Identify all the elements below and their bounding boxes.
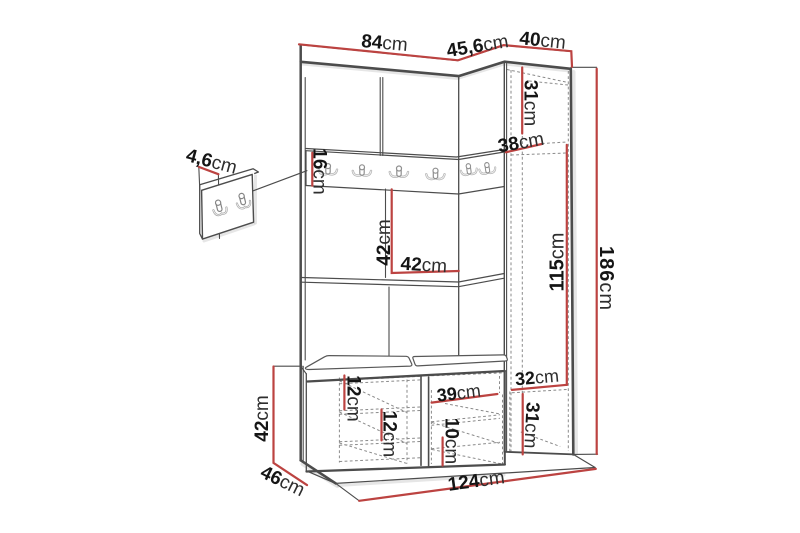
svg-text:16cm: 16cm: [309, 148, 330, 194]
svg-text:186cm: 186cm: [595, 246, 617, 311]
svg-text:31cm: 31cm: [520, 80, 541, 126]
svg-text:84cm: 84cm: [360, 31, 408, 56]
svg-text:32cm: 32cm: [514, 366, 560, 390]
svg-text:115cm: 115cm: [547, 233, 569, 292]
svg-text:42cm: 42cm: [374, 219, 395, 265]
svg-text:31cm: 31cm: [519, 402, 542, 450]
svg-text:10cm: 10cm: [441, 418, 462, 464]
svg-text:42cm: 42cm: [252, 395, 273, 441]
svg-text:42cm: 42cm: [400, 254, 448, 278]
svg-text:12cm: 12cm: [343, 375, 364, 421]
svg-text:12cm: 12cm: [379, 411, 400, 457]
